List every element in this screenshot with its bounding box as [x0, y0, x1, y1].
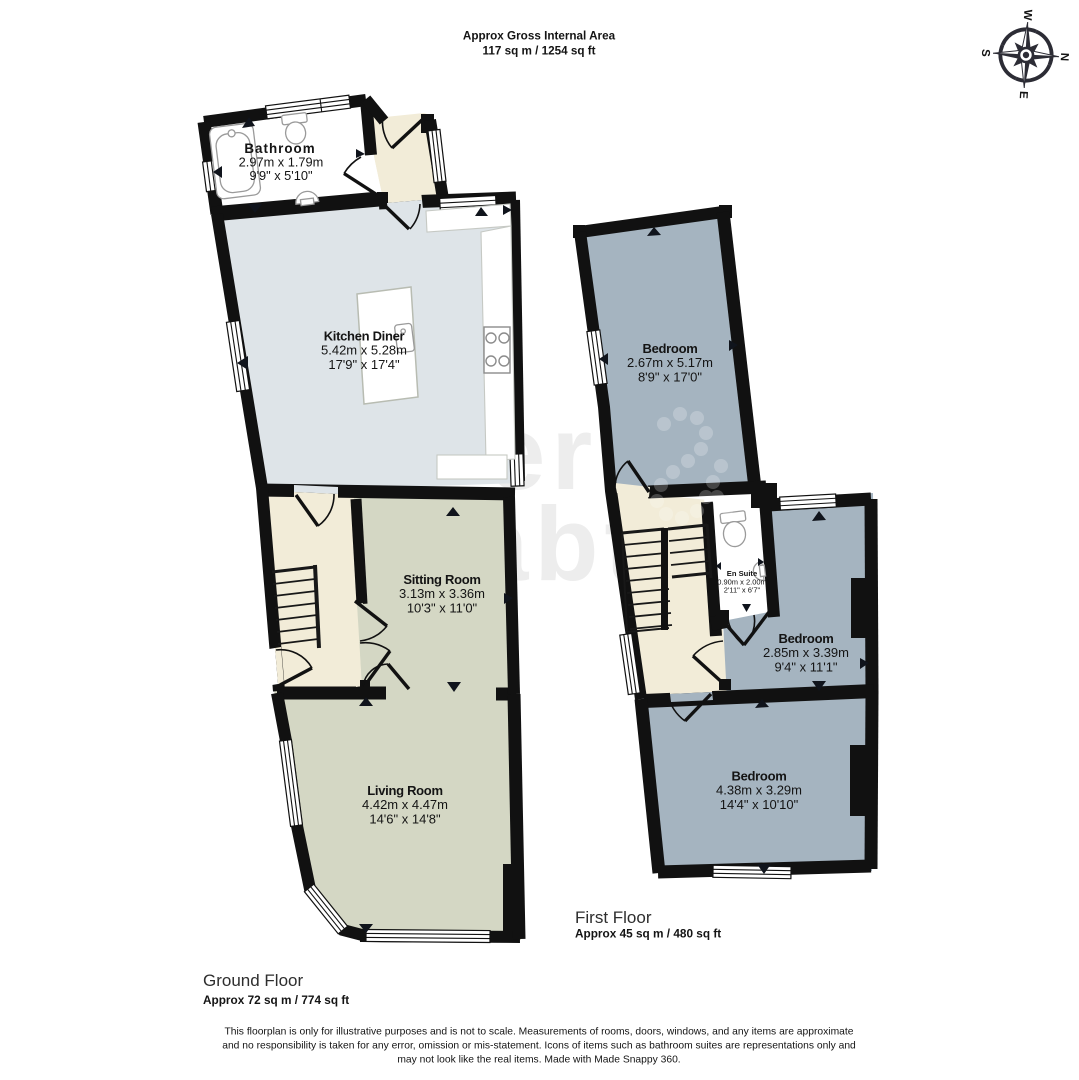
svg-text:E: E — [1017, 91, 1029, 100]
svg-text:10'3" x 11'0": 10'3" x 11'0" — [407, 600, 478, 615]
svg-text:3.13m x 3.36m: 3.13m x 3.36m — [399, 586, 485, 601]
svg-text:9'4" x 11'1": 9'4" x 11'1" — [774, 659, 837, 674]
svg-text:Approx Gross Internal Area: Approx Gross Internal Area — [463, 30, 616, 43]
svg-text:2.67m x 5.17m: 2.67m x 5.17m — [627, 355, 713, 370]
svg-text:2'11" x 6'7": 2'11" x 6'7" — [724, 586, 761, 595]
svg-text:4.38m x 3.29m: 4.38m x 3.29m — [716, 783, 802, 798]
svg-text:S: S — [979, 49, 991, 58]
svg-text:Sitting Room: Sitting Room — [403, 572, 480, 587]
svg-text:Approx 72 sq m / 774 sq ft: Approx 72 sq m / 774 sq ft — [203, 993, 349, 1007]
svg-text:14'6" x 14'8": 14'6" x 14'8" — [369, 811, 441, 826]
svg-text:9'9" x 5'10": 9'9" x 5'10" — [249, 168, 312, 183]
svg-text:Living Room: Living Room — [367, 783, 442, 798]
svg-text:N: N — [1058, 53, 1070, 62]
svg-text:Bedroom: Bedroom — [732, 769, 787, 784]
svg-text:Kitchen Diner: Kitchen Diner — [324, 329, 405, 344]
svg-text:17'9" x 17'4": 17'9" x 17'4" — [328, 357, 400, 372]
svg-text:Ground Floor: Ground Floor — [203, 971, 303, 990]
svg-text:and no responsibility is taken: and no responsibility is taken for any e… — [222, 1041, 856, 1052]
svg-text:2.85m x 3.39m: 2.85m x 3.39m — [763, 645, 849, 660]
svg-text:8'9" x 17'0": 8'9" x 17'0" — [638, 369, 702, 384]
svg-text:First Floor: First Floor — [575, 908, 652, 927]
svg-text:Approx 45 sq m / 480 sq ft: Approx 45 sq m / 480 sq ft — [575, 927, 721, 941]
svg-text:W: W — [1021, 9, 1034, 21]
svg-text:4.42m x 4.47m: 4.42m x 4.47m — [362, 797, 448, 812]
svg-text:This floorplan is only for ill: This floorplan is only for illustrative … — [225, 1027, 854, 1038]
svg-text:Bedroom: Bedroom — [643, 341, 698, 356]
svg-text:Bedroom: Bedroom — [779, 631, 834, 646]
svg-text:5.42m x 5.28m: 5.42m x 5.28m — [321, 343, 407, 358]
svg-text:may not look like the real ite: may not look like the real items. Made w… — [397, 1055, 680, 1066]
svg-text:14'4" x 10'10": 14'4" x 10'10" — [720, 797, 799, 812]
svg-text:117 sq m / 1254 sq ft: 117 sq m / 1254 sq ft — [482, 45, 595, 58]
